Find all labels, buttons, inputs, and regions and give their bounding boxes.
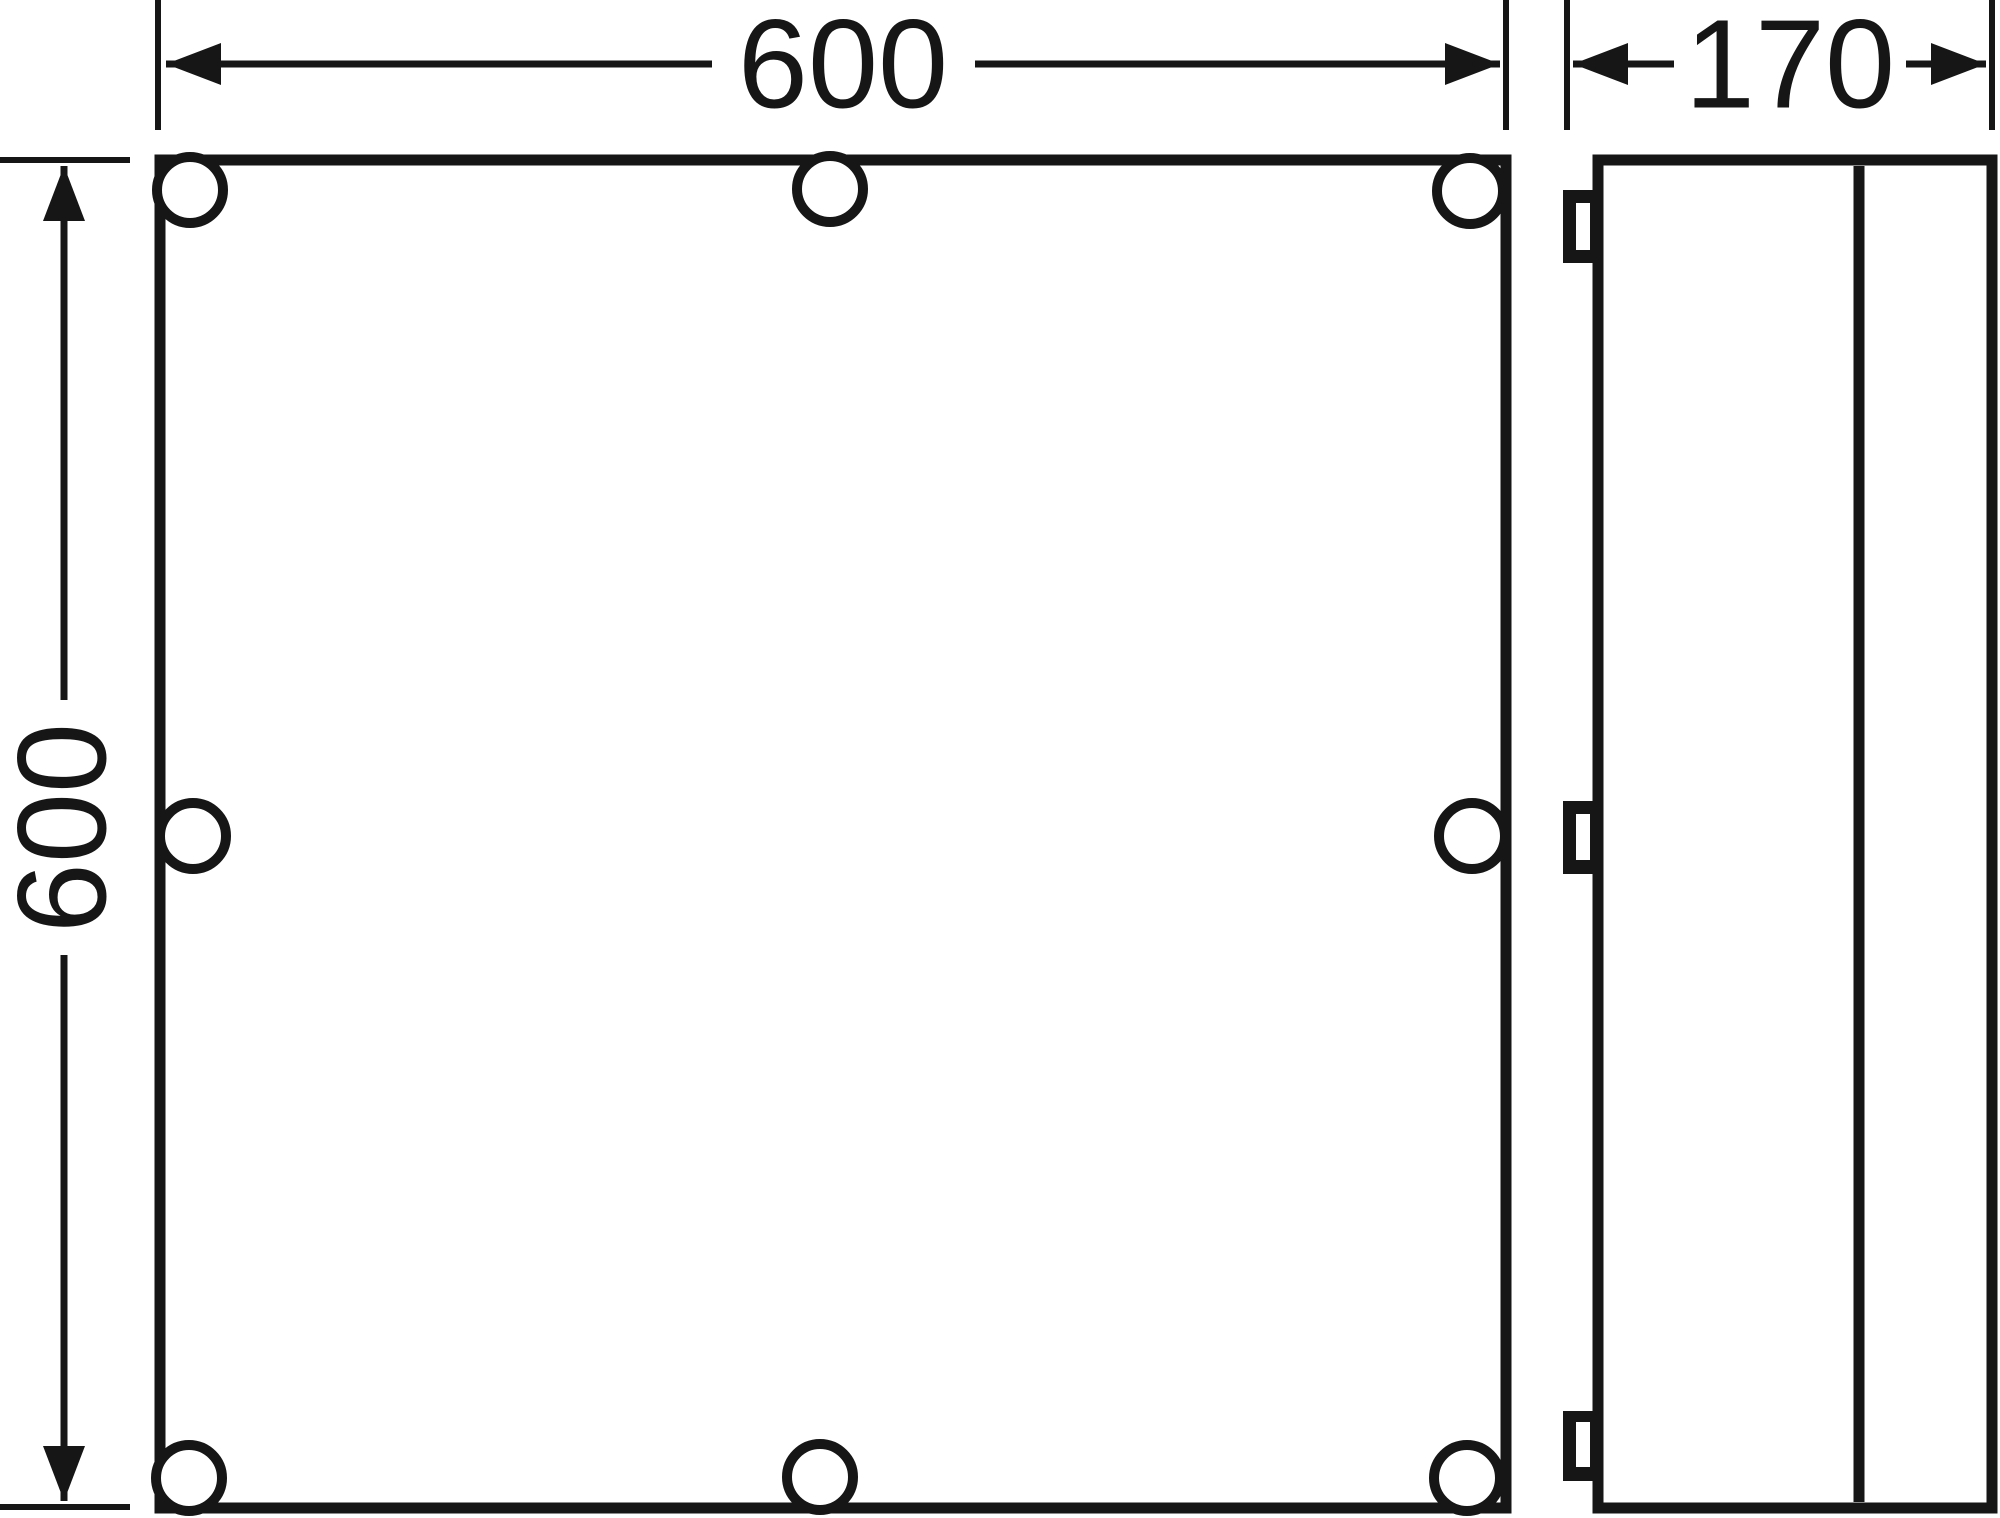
latch-middle-slot [1576, 814, 1590, 860]
latch-middle [1563, 801, 1601, 874]
screw-hole-middle-right [1439, 803, 1505, 869]
dimension-height-label: 600 [0, 723, 133, 933]
dimension-width-label: 600 [738, 0, 948, 135]
arrow-left-icon [1573, 43, 1628, 85]
arrow-up-icon [43, 166, 85, 221]
arrow-right-icon [1931, 43, 1986, 85]
dimension-depth-label: 170 [1685, 0, 1895, 135]
latch-top [1563, 190, 1601, 263]
screw-hole-middle-left [160, 803, 226, 869]
latch-top-slot [1576, 203, 1590, 250]
dimension-drawing-page: 600 600 170 [0, 0, 2000, 1518]
screw-hole-bottom-left [156, 1445, 222, 1511]
front-view [156, 156, 1506, 1511]
side-view-outline [1598, 160, 1992, 1508]
dimension-width: 600 [158, 0, 1506, 135]
dimension-depth: 170 [1567, 0, 1992, 135]
screw-hole-bottom-right [1434, 1445, 1500, 1511]
arrow-left-icon [166, 43, 221, 85]
screw-hole-top-right [1437, 158, 1503, 224]
latch-bottom [1563, 1411, 1601, 1481]
latch-bottom-slot [1576, 1422, 1590, 1467]
screw-hole-top-middle [797, 156, 863, 222]
arrow-right-icon [1445, 43, 1500, 85]
screw-hole-bottom-middle [787, 1444, 853, 1510]
front-view-outline [160, 160, 1506, 1508]
enclosure-dimension-drawing: 600 600 170 [0, 0, 2000, 1518]
side-view [1563, 160, 1992, 1508]
dimension-height: 600 [0, 160, 133, 1507]
screw-hole-top-left [157, 157, 223, 223]
arrow-down-icon [43, 1446, 85, 1501]
